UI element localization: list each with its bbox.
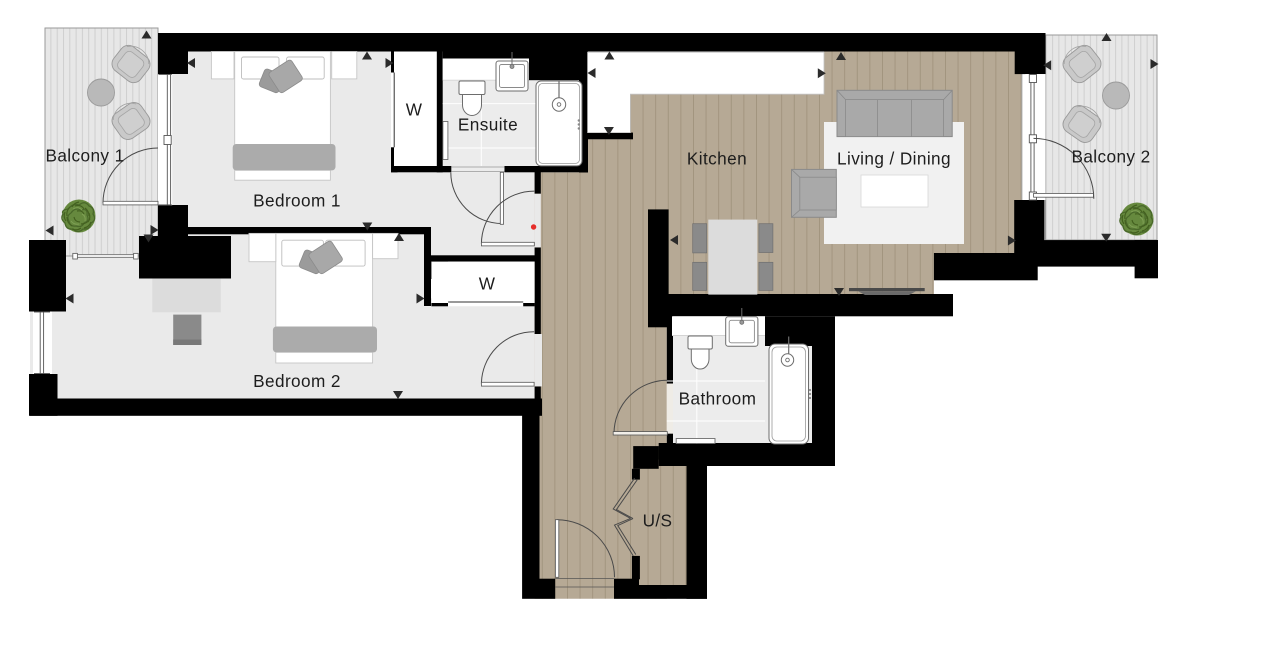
svg-text:Balcony 1: Balcony 1: [45, 146, 124, 166]
svg-text:Ensuite: Ensuite: [458, 115, 518, 135]
svg-text:Bedroom 2: Bedroom 2: [253, 371, 341, 391]
svg-text:W: W: [406, 100, 423, 120]
svg-text:Kitchen: Kitchen: [687, 149, 747, 169]
svg-text:Bedroom 1: Bedroom 1: [253, 191, 341, 211]
svg-text:Bathroom: Bathroom: [679, 389, 757, 409]
svg-text:U/S: U/S: [643, 511, 673, 531]
svg-text:Balcony 2: Balcony 2: [1071, 147, 1150, 167]
svg-text:W: W: [479, 274, 496, 294]
svg-text:Living / Dining: Living / Dining: [837, 149, 951, 169]
